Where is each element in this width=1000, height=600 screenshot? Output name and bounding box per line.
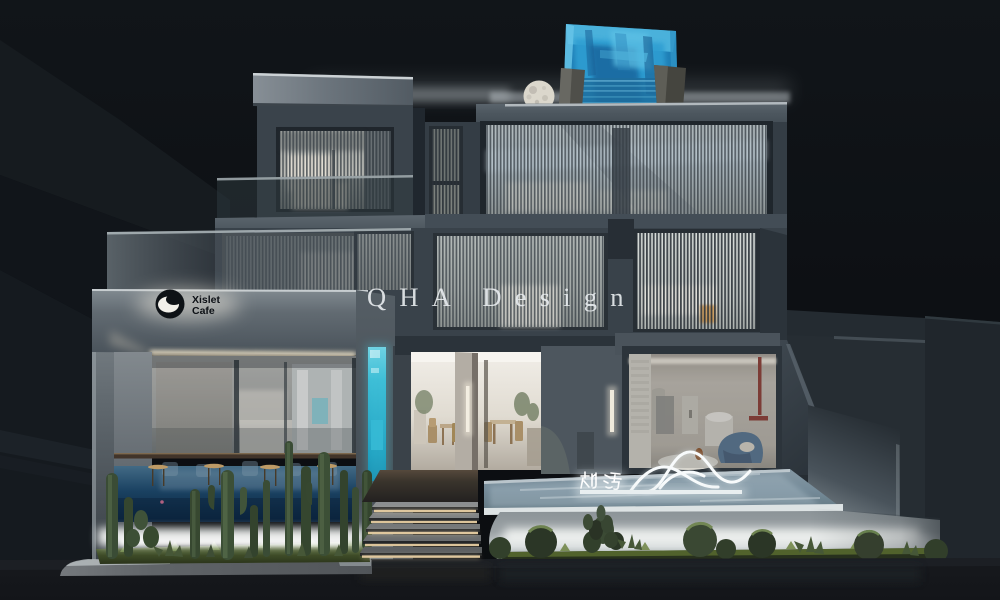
svg-text:Cafe: Cafe bbox=[192, 305, 215, 317]
svg-text:QHA Design: QHA Design bbox=[367, 282, 637, 312]
